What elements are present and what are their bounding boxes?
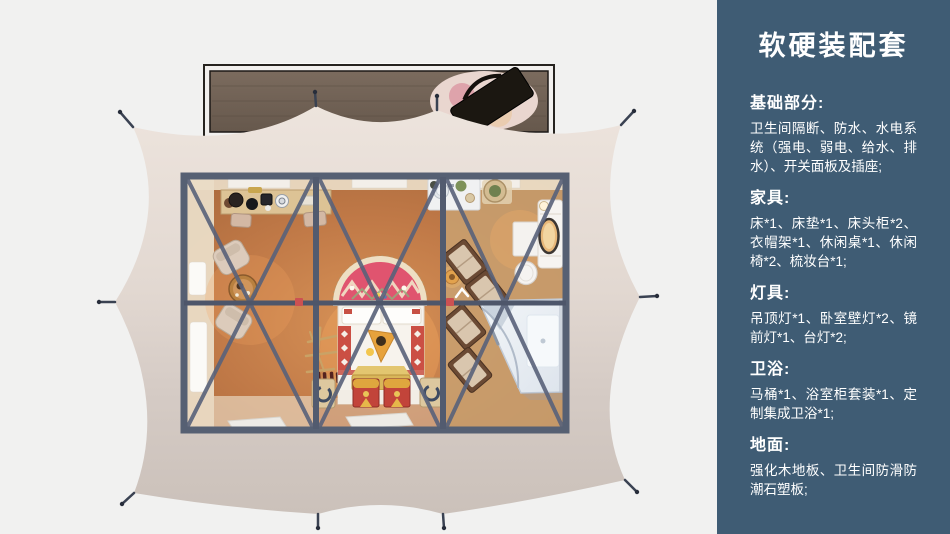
tray [248, 187, 262, 193]
joint-connector [446, 298, 454, 306]
plant-icon [456, 181, 467, 192]
section-body: 吊顶灯*1、卧室壁灯*2、镜前灯*1、台灯*2; [750, 309, 917, 347]
hat-icon [229, 193, 243, 207]
section-body: 马桶*1、浴室柜套装*1、定制集成卫浴*1; [750, 385, 917, 423]
section-basics: 基础部分: 卫生间隔断、防水、水电系统（强电、弱电、给水、排水）、开关面板及插座… [750, 93, 917, 176]
section-lighting: 灯具: 吊顶灯*1、卧室壁灯*2、镜前灯*1、台灯*2; [750, 283, 917, 347]
cup-icon [265, 205, 271, 211]
section-heading: 家具: [750, 188, 917, 210]
bed [333, 256, 427, 404]
section-heading: 灯具: [750, 283, 917, 305]
section-body: 强化木地板、卫生间防滑防潮石塑板; [750, 461, 917, 499]
section-heading: 卫浴: [750, 359, 917, 381]
kettle-icon [261, 194, 272, 205]
section-heading: 基础部分: [750, 93, 917, 115]
drain-icon [541, 339, 546, 344]
page: 软硬装配套 基础部分: 卫生间隔断、防水、水电系统（强电、弱电、给水、排水）、开… [0, 0, 950, 534]
foot-blanket [352, 366, 410, 375]
sidebar-title: 软硬装配套 [717, 24, 950, 63]
floorplan-render [0, 0, 717, 534]
section-heading: 地面: [750, 435, 917, 457]
side-windows [189, 262, 207, 392]
section-body: 卫生间隔断、防水、水电系统（强电、弱电、给水、排水）、开关面板及插座; [750, 119, 917, 176]
section-flooring: 地面: 强化木地板、卫生间防滑防潮石塑板; [750, 435, 917, 499]
section-furniture: 家具: 床*1、床垫*1、床头柜*2、衣帽架*1、休闲桌*1、休闲椅*2、梳妆台… [750, 188, 917, 271]
section-body: 床*1、床垫*1、床头柜*2、衣帽架*1、休闲桌*1、休闲椅*2、梳妆台*1; [750, 214, 917, 271]
spec-sidebar: 软硬装配套 基础部分: 卫生间隔断、防水、水电系统（强电、弱电、给水、排水）、开… [717, 0, 950, 534]
hat-icon [246, 198, 258, 210]
joint-connector [295, 298, 303, 306]
bowl-icon [466, 194, 475, 203]
section-bathroom: 卫浴: 马桶*1、浴室柜套装*1、定制集成卫浴*1; [750, 359, 917, 423]
desk-chair [231, 213, 252, 227]
